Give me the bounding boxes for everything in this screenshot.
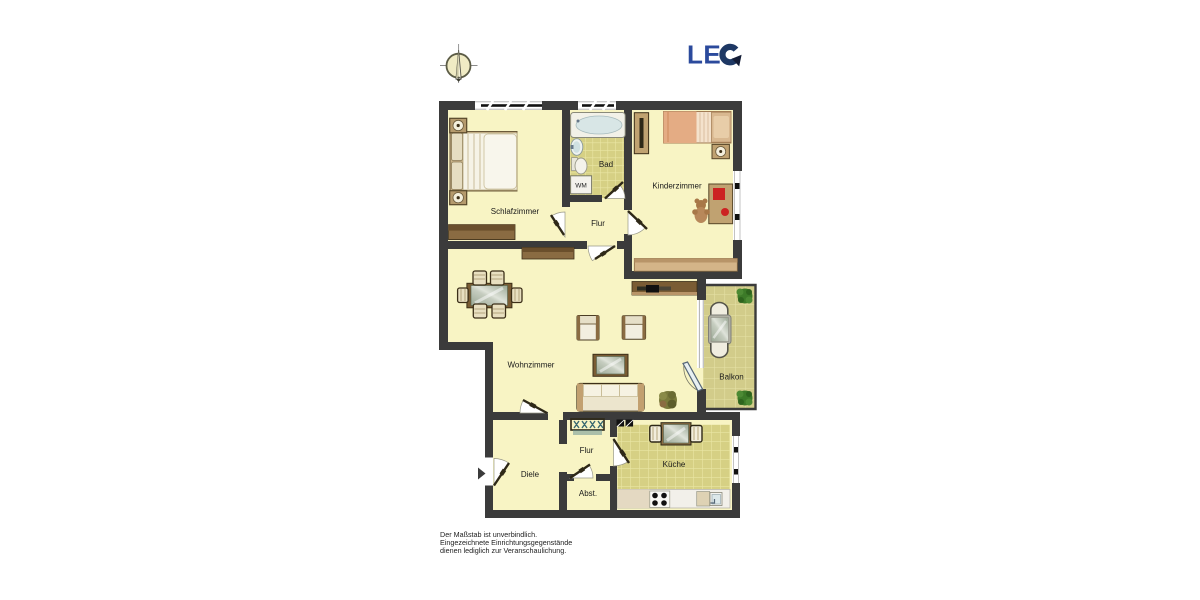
svg-text:LE: LE (687, 40, 721, 70)
svg-text:WM: WM (575, 183, 587, 190)
svg-text:Wohnzimmer: Wohnzimmer (508, 361, 555, 370)
svg-text:Abst.: Abst. (579, 489, 597, 498)
svg-text:Flur: Flur (591, 219, 605, 228)
svg-text:dienen lediglich zur Veranscha: dienen lediglich zur Veranschaulichung. (440, 546, 566, 555)
svg-text:Bad: Bad (599, 160, 613, 169)
svg-text:Küche: Küche (663, 460, 686, 469)
svg-text:Balkon: Balkon (719, 373, 743, 382)
svg-text:Schlafzimmer: Schlafzimmer (491, 207, 540, 216)
svg-text:Kinderzimmer: Kinderzimmer (652, 182, 702, 191)
svg-text:Diele: Diele (521, 470, 540, 479)
svg-text:Flur: Flur (580, 446, 594, 455)
